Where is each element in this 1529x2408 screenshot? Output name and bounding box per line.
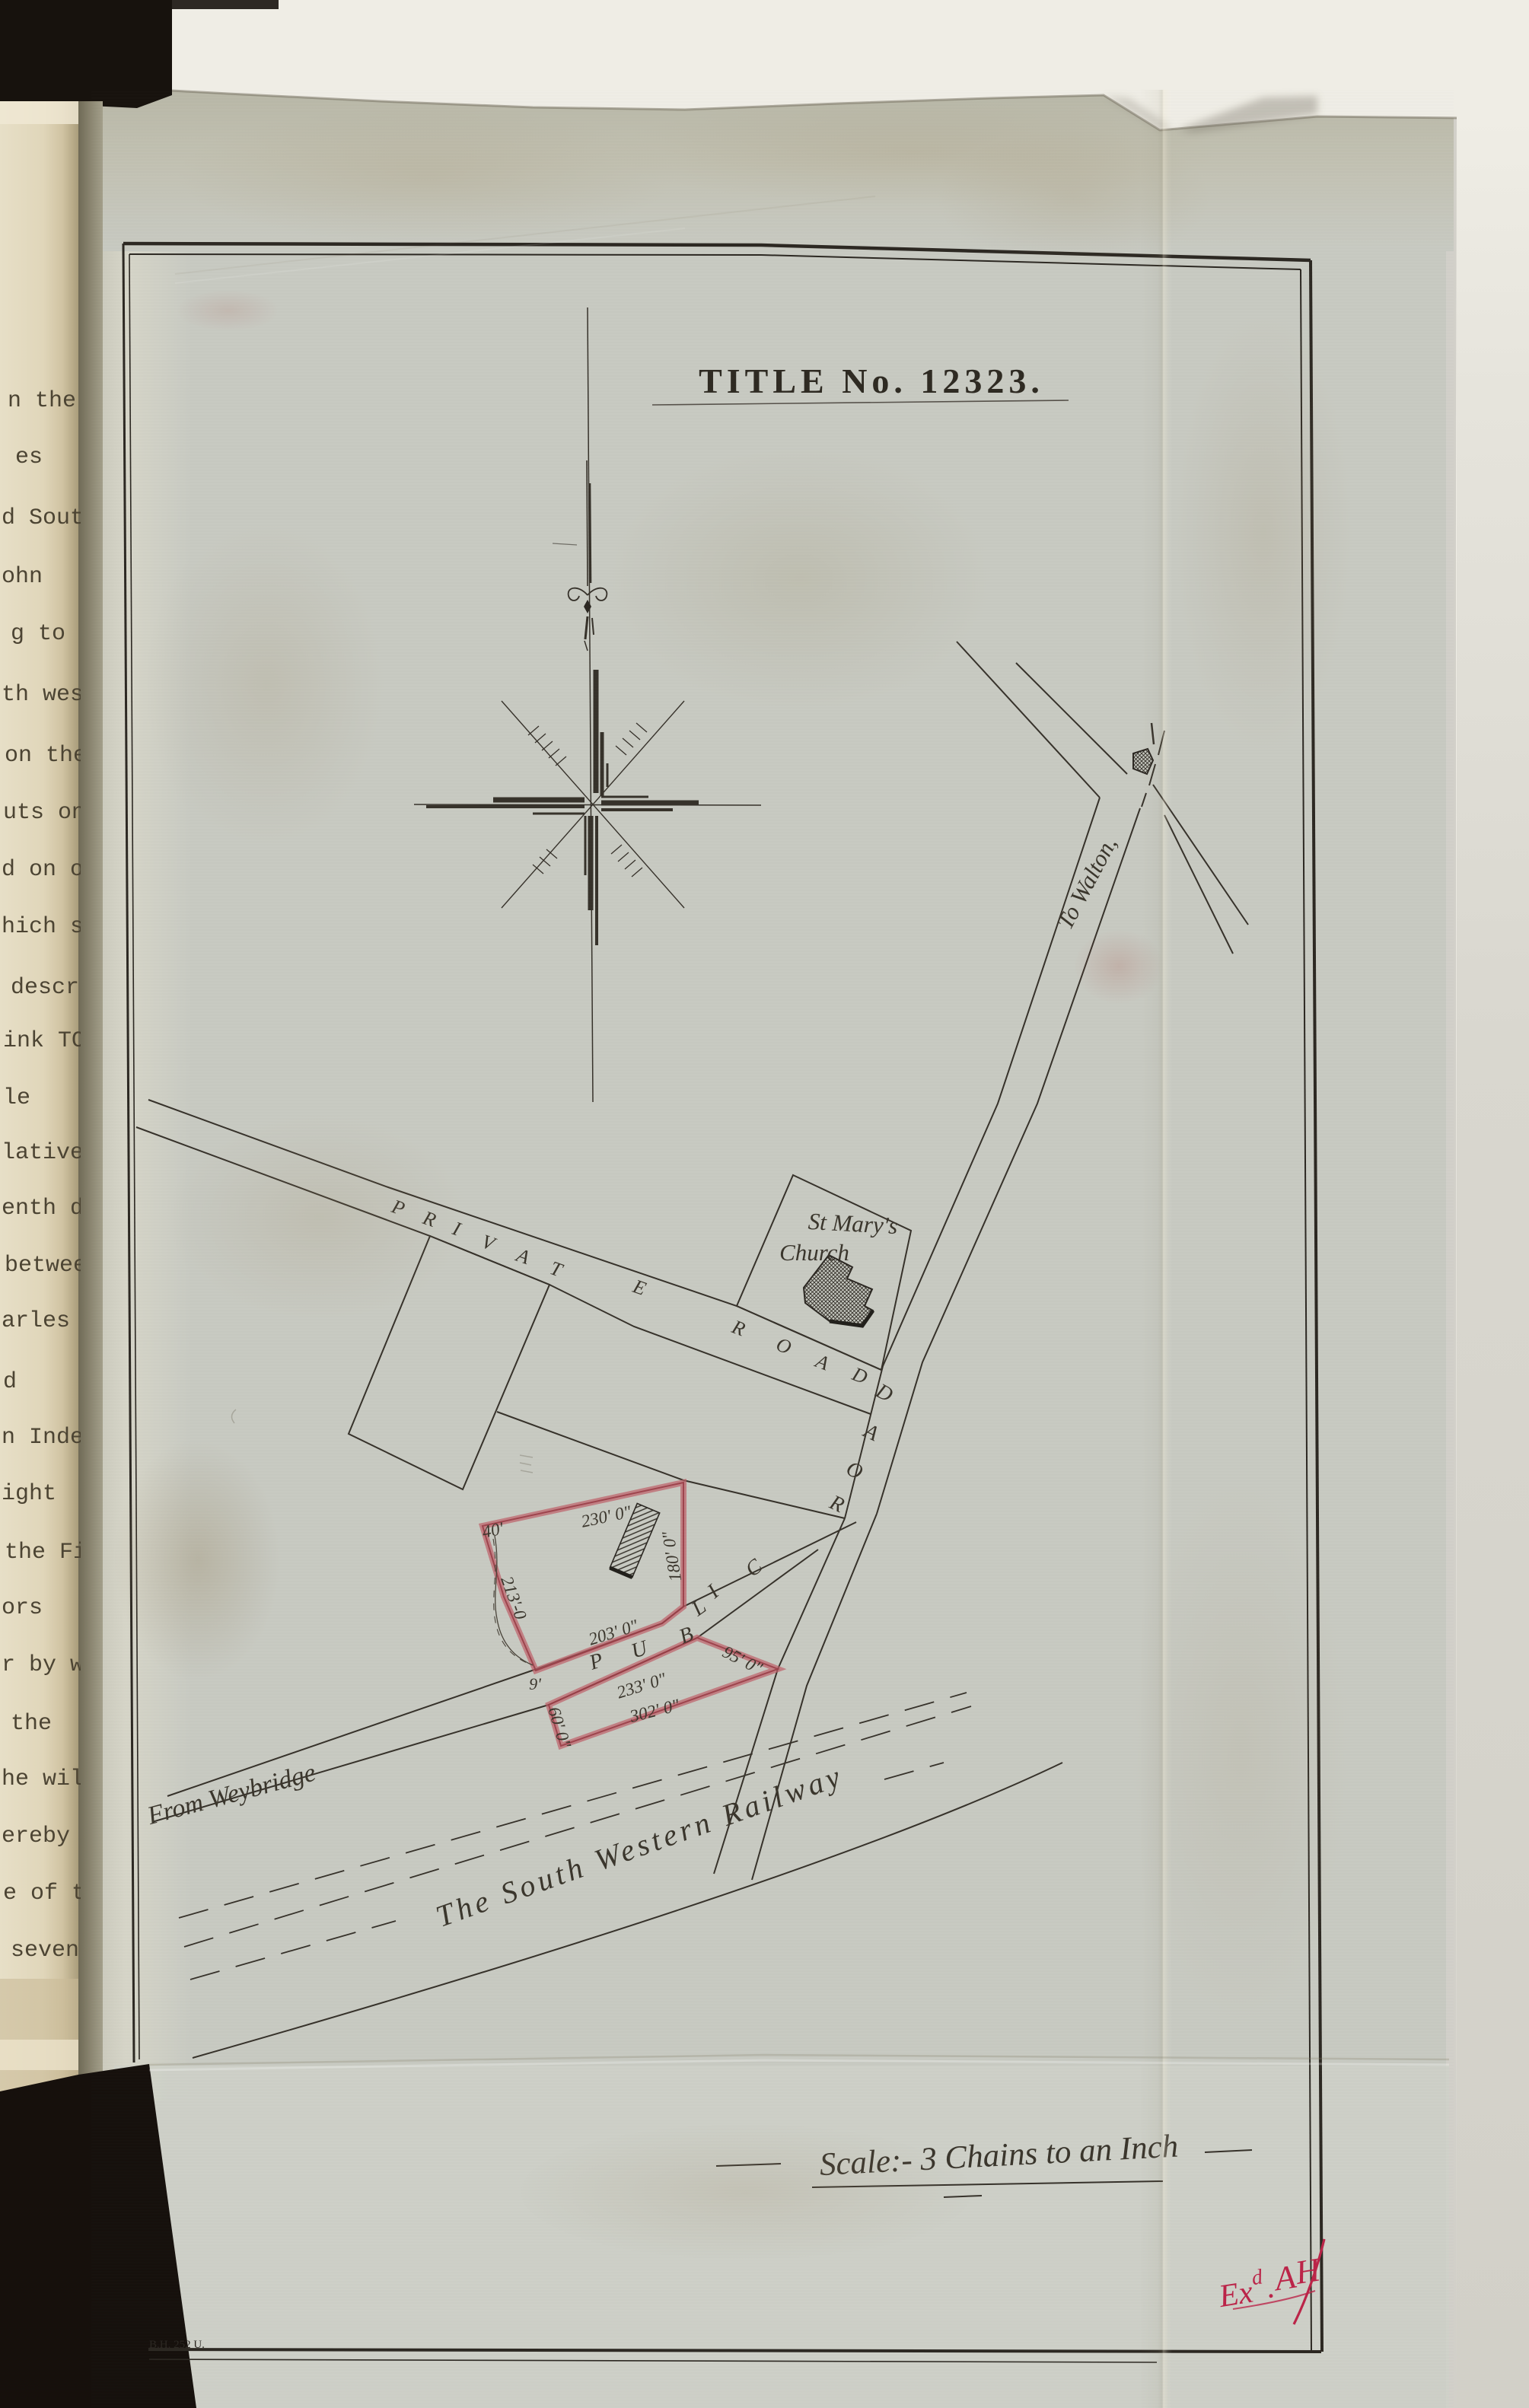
svg-text:on the: on the xyxy=(5,743,87,769)
svg-text:lative: lative xyxy=(2,1140,84,1166)
svg-text:le: le xyxy=(3,1085,30,1111)
svg-text:ohn: ohn xyxy=(2,564,43,590)
svg-text:es: es xyxy=(15,444,43,470)
svg-text:d: d xyxy=(3,1369,17,1395)
svg-text:the: the xyxy=(11,1711,52,1737)
svg-text:arles: arles xyxy=(2,1308,70,1334)
svg-text:ereby: ereby xyxy=(2,1824,70,1849)
svg-text:ight: ight xyxy=(2,1481,56,1507)
svg-text:uts on: uts on xyxy=(3,800,85,826)
svg-text:ink TO: ink TO xyxy=(3,1028,85,1054)
svg-text:ors: ors xyxy=(2,1595,43,1621)
svg-text:g to: g to xyxy=(11,621,65,647)
svg-text:n the: n the xyxy=(8,388,76,414)
svg-text:descri: descri xyxy=(11,975,93,1001)
